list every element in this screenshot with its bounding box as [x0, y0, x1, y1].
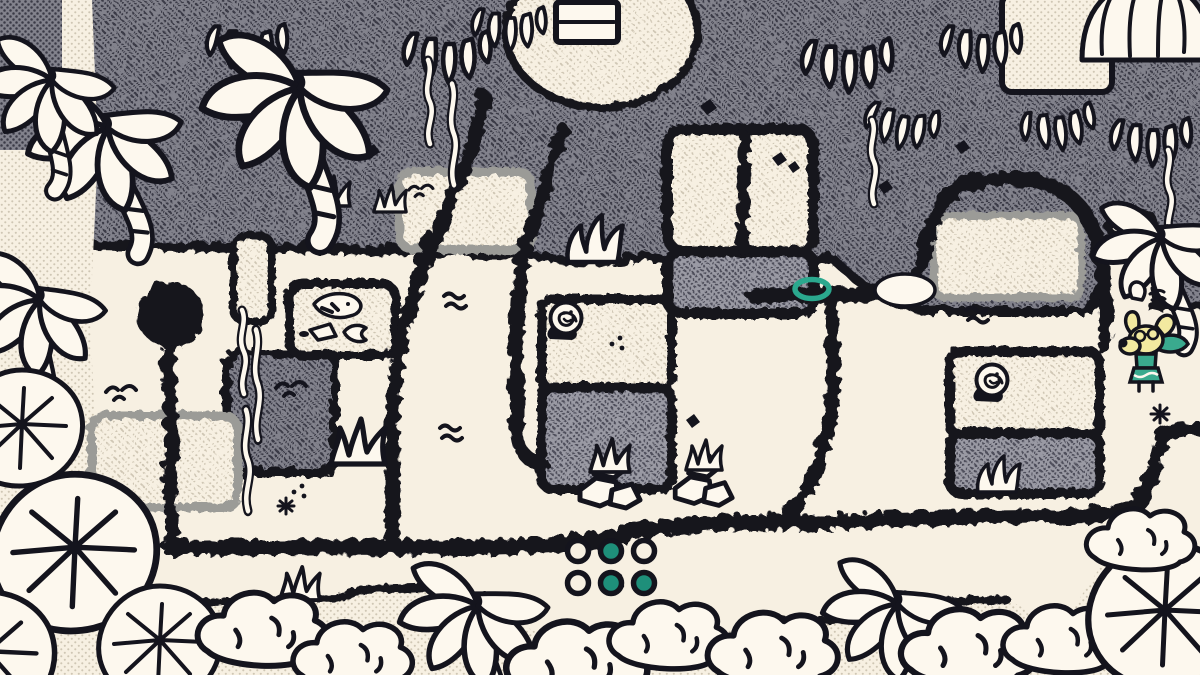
game-viewport[interactable]	[0, 0, 1200, 675]
snail	[547, 303, 581, 341]
emote-leaf	[1130, 282, 1145, 300]
pip-empty	[568, 541, 589, 562]
path-box-divider	[740, 134, 742, 246]
dog-nose	[1119, 339, 1128, 348]
snail	[973, 365, 1007, 403]
pip-filled	[601, 573, 622, 594]
pip-empty	[568, 573, 589, 594]
jungle-scene	[0, 0, 1200, 675]
striped-dome-tree	[1082, 0, 1200, 60]
box-upper-right	[932, 214, 1080, 296]
pip-filled	[634, 573, 655, 594]
gray-box-right	[948, 432, 1098, 492]
pip-filled	[601, 541, 622, 562]
box-top-left	[398, 170, 530, 248]
gray-box-top-center	[666, 250, 812, 312]
snail-box-right	[948, 350, 1098, 434]
vine-column-box	[232, 234, 270, 320]
path-pom-trunk	[166, 342, 169, 548]
pip-empty	[634, 541, 655, 562]
glasses-bridge	[1145, 334, 1148, 335]
pom-pom-tree	[135, 279, 201, 345]
dog-shirt	[1136, 354, 1156, 368]
